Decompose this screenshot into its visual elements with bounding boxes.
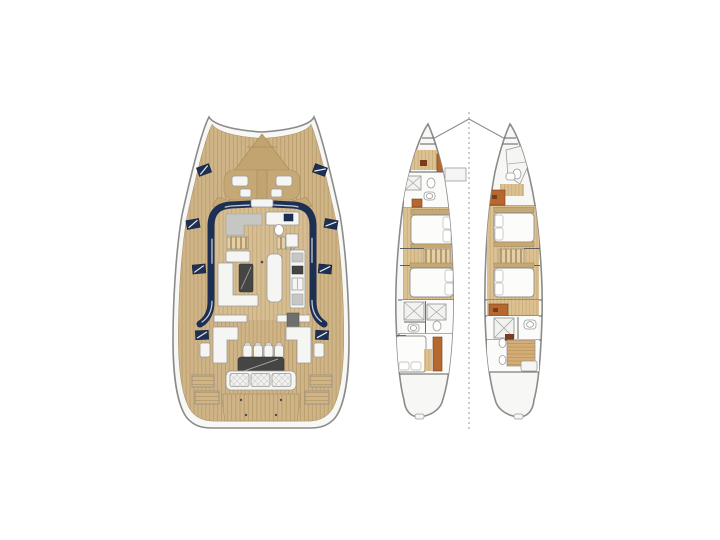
floor-fitting [261, 261, 264, 264]
galley-island [267, 254, 282, 302]
oven [292, 266, 303, 274]
washbasin [433, 321, 441, 331]
pillow [445, 283, 453, 295]
pillow [399, 362, 409, 370]
transom-steps-port-upper [192, 375, 214, 387]
washbasin [499, 339, 506, 348]
fridge [286, 234, 298, 247]
floorplan-svg [0, 0, 720, 540]
nav-seat [226, 251, 250, 262]
starboard-hull-interior [484, 138, 542, 372]
aft-cabin-port [396, 335, 442, 372]
bench-cushion [230, 374, 249, 387]
galley-counter-top [266, 212, 299, 225]
transom-steps-starboard-lower [305, 391, 329, 404]
pillow [495, 283, 503, 295]
pillow [495, 215, 503, 227]
swim-platform [221, 394, 301, 421]
side-seat-port [200, 343, 210, 357]
transom-steps-starboard-upper [310, 375, 332, 387]
hull-stairway [424, 249, 450, 265]
aft-bulkhead-port [214, 315, 247, 322]
pillow [443, 230, 451, 242]
washbasin [427, 178, 435, 188]
cabinet [489, 304, 508, 316]
vanity [412, 199, 422, 207]
side-seat-starboard [314, 343, 324, 357]
wardrobe [433, 337, 442, 371]
bow-cushion [276, 176, 292, 186]
bench-cushion [251, 374, 270, 387]
foredeck-door [251, 199, 273, 207]
bow-cushion [271, 189, 282, 197]
companionway-stairs-port [227, 237, 248, 249]
pillow [411, 362, 421, 370]
washbasin [499, 356, 506, 365]
locker [420, 160, 427, 166]
bench-cushion [272, 374, 291, 387]
bow-cushion [240, 189, 251, 197]
main-deck-plan [173, 117, 349, 428]
transom-fitting [514, 414, 523, 419]
lower-deck-plan [396, 112, 542, 432]
pillow [445, 270, 453, 282]
transom-steps-port-lower [195, 391, 219, 404]
grill-module [287, 313, 299, 327]
pillow [495, 270, 503, 282]
catamaran-floorplan-canvas [0, 0, 720, 540]
appliance [292, 294, 303, 305]
cooktop [284, 214, 293, 221]
aft-bench [226, 371, 296, 390]
appliance [292, 253, 303, 262]
toilet [506, 173, 515, 180]
hull-stairway [499, 249, 524, 265]
pillow [495, 228, 503, 240]
bow-lounge-seating [224, 170, 300, 200]
galley-sink [275, 225, 284, 236]
hull-entry-step [445, 168, 466, 181]
bow-cushion [232, 176, 248, 186]
transom-fitting [415, 414, 424, 419]
